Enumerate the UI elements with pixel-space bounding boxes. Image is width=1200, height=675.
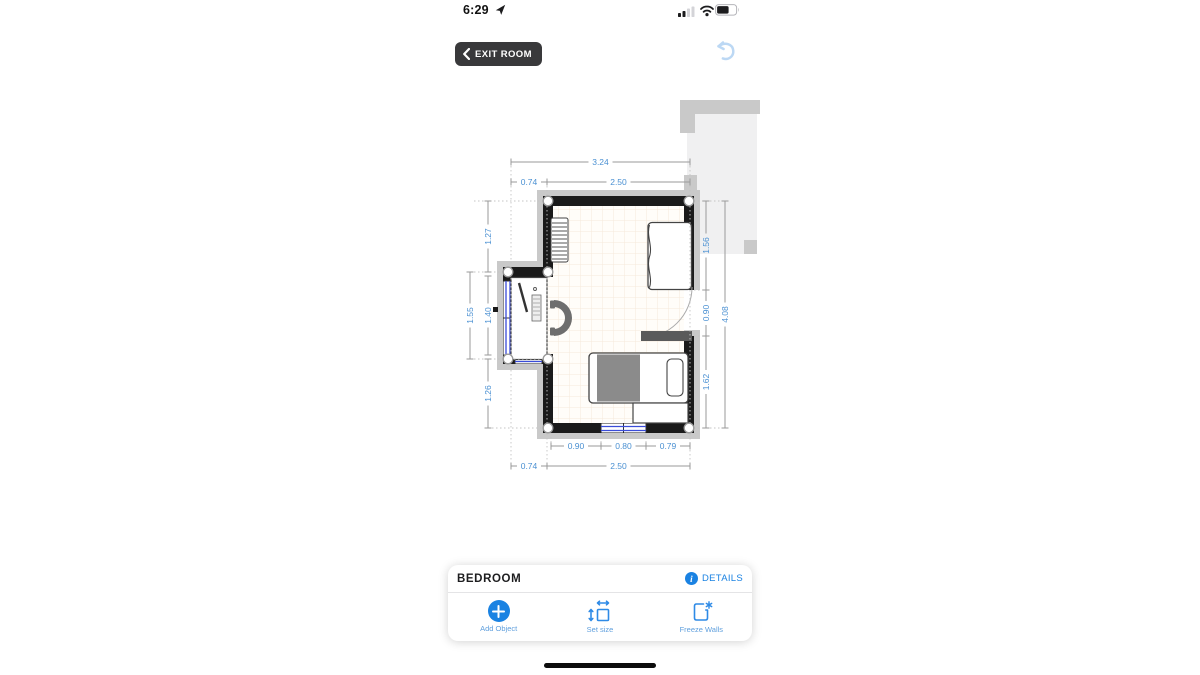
plus-circle-icon [488,600,510,622]
dimension-label-bottom_right[interactable]: 0.79 [660,441,677,451]
cellular-signal-icon [678,5,696,17]
bed-bottom[interactable] [589,353,688,403]
undo-button[interactable] [711,38,739,66]
dimension-label-top_right[interactable]: 2.50 [610,177,627,187]
battery-icon [715,4,740,16]
dimension-label-bottom_window[interactable]: 0.80 [615,441,632,451]
set-size-button[interactable]: Set size [549,593,650,640]
dimension-label-right_upper[interactable]: 1.56 [701,237,711,254]
set-size-label: Set size [587,625,614,634]
add-object-label: Add Object [480,624,517,633]
dimension-label-right_total[interactable]: 4.08 [720,306,730,323]
bed-top[interactable] [648,223,692,290]
app-screen: 6:29 EXIT ROOM [0,0,1200,675]
dimension-label-top_total[interactable]: 3.24 [592,157,609,167]
window-bottom[interactable] [601,424,646,433]
home-indicator[interactable] [544,663,656,668]
floor-plan-canvas[interactable]: 3.240.742.501.271.551.401.261.560.901.62… [448,88,768,478]
dimension-label-left_outer[interactable]: 1.55 [465,307,475,324]
freeze-walls-label: Freeze Walls [680,625,723,634]
dimension-label-left_upper[interactable]: 1.27 [483,228,493,245]
wall-left-lower [543,354,553,433]
dresser[interactable] [633,403,688,423]
dimension-label-bottom_left[interactable]: 0.90 [568,441,585,451]
desk[interactable] [511,278,547,360]
location-arrow-icon [495,4,506,16]
dimension-label-top_left[interactable]: 0.74 [521,177,538,187]
dimension-label-bottom_outer_left[interactable]: 0.74 [521,461,538,471]
wifi-icon [699,4,715,17]
details-button[interactable]: i DETAILS [685,572,743,585]
status-time: 6:29 [463,3,489,17]
room-panel: BEDROOM i DETAILS Add Object Set size [448,565,752,641]
room-title: BEDROOM [457,573,521,585]
resize-icon [588,600,611,623]
exit-room-button[interactable]: EXIT ROOM [455,42,542,66]
freeze-walls-button[interactable]: Freeze Walls [651,593,752,640]
radiator[interactable] [551,218,568,262]
details-label: DETAILS [702,573,743,584]
info-icon: i [685,572,698,585]
undo-arrow-icon [712,38,738,64]
dimension-label-left_lower[interactable]: 1.26 [483,385,493,402]
dimension-label-right_door[interactable]: 0.90 [701,304,711,321]
door-leaf [641,331,692,341]
dimension-label-right_lower[interactable]: 1.62 [701,373,711,390]
exit-room-label: EXIT ROOM [475,49,532,60]
wall-top [543,196,694,206]
dimension-label-bottom_outer_right[interactable]: 2.50 [610,461,627,471]
wall-marker[interactable] [493,307,498,312]
add-object-button[interactable]: Add Object [448,593,549,640]
back-chevron-icon [463,48,470,60]
dimension-label-left_inner[interactable]: 1.40 [483,307,493,324]
freeze-walls-icon [690,600,713,623]
